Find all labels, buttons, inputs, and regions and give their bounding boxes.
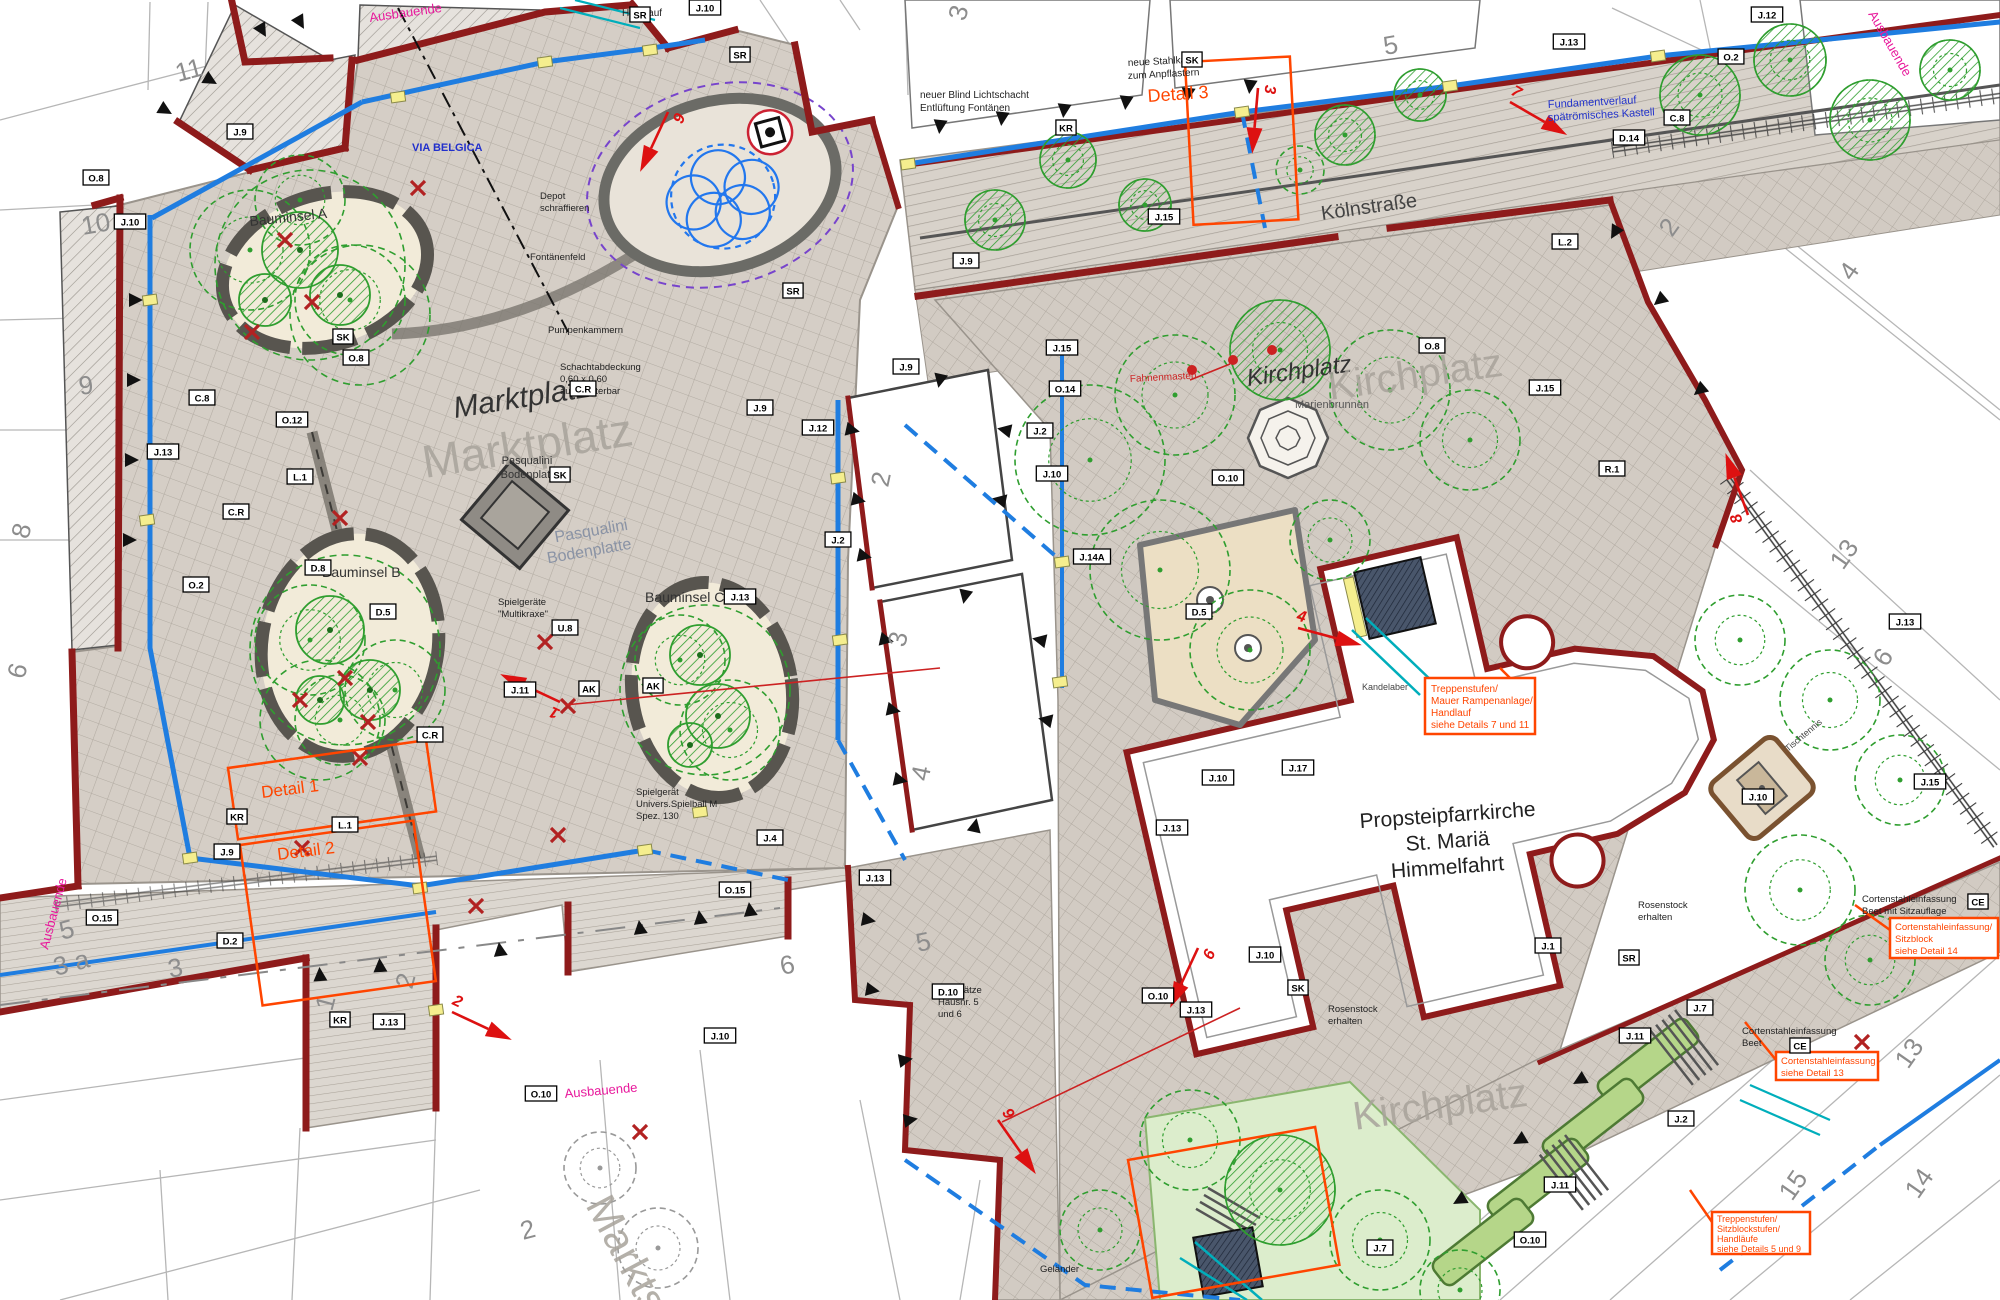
code-label-text: SK <box>553 471 566 482</box>
code-label-text: J.15 <box>1155 213 1174 224</box>
removal-x-mark <box>633 1125 647 1139</box>
utility-node <box>1054 556 1069 568</box>
code-label-text: J.9 <box>899 363 912 374</box>
code-label-text: J.11 <box>511 686 530 697</box>
section-number: 2 <box>449 992 465 1012</box>
code-label-text: SR <box>633 11 646 22</box>
code-label: C.R <box>570 381 596 396</box>
code-label: SK <box>333 329 353 344</box>
code-label: J.11 <box>1619 1028 1650 1043</box>
parcel-number: 2 <box>517 1213 539 1246</box>
code-label-text: J.4 <box>763 834 777 845</box>
code-label-text: SR <box>786 287 799 298</box>
treppen1-line3: Handlauf <box>1431 708 1471 719</box>
code-label: D.14 <box>1613 130 1644 145</box>
code-label: D.10 <box>932 984 963 999</box>
gelaender-label: Geländer <box>1040 1264 1079 1275</box>
utility-node <box>1650 50 1665 62</box>
treppen2-line4: siehe Details 5 und 9 <box>1717 1244 1801 1254</box>
site-plan-page: 637841299 111098653 a3122352345624613131… <box>0 0 2000 1300</box>
code-label: J.14A <box>1074 549 1111 564</box>
code-label: J.13 <box>859 870 890 885</box>
code-label: J.15 <box>1914 774 1945 789</box>
code-label: C.R <box>417 727 443 742</box>
code-label: CE <box>1790 1038 1810 1053</box>
spielgeraet-label-2: Univers.Spielball M <box>636 799 717 810</box>
entrance-triangle <box>291 13 310 32</box>
code-label: O.15 <box>86 910 117 925</box>
code-label: SK <box>1182 52 1202 67</box>
corten1-line1: Cortenstahleinfassung/ <box>1895 922 1993 933</box>
code-label-text: J.12 <box>809 424 828 435</box>
parcel-number: 6 <box>1 660 34 682</box>
code-label: J.1 <box>1535 938 1561 953</box>
marienbrunnen-label: Marienbrunnen <box>1295 399 1369 411</box>
code-label-text: O.15 <box>92 914 113 925</box>
code-label: C.R <box>223 504 249 519</box>
code-label: J.11 <box>1544 1177 1575 1192</box>
code-label: J.13 <box>147 444 178 459</box>
code-label: J.10 <box>114 214 145 229</box>
bauminsel-c-label: Bauminsel C <box>645 589 724 605</box>
bauminsel-b-label: Bauminsel B <box>322 564 401 580</box>
code-label-text: D.14 <box>1619 134 1640 145</box>
code-label: O.2 <box>1718 49 1744 64</box>
code-label-text: O.10 <box>1520 1236 1541 1247</box>
code-label: SR <box>630 7 650 22</box>
code-label-text: J.13 <box>731 593 750 604</box>
treppen2-line1: Treppenstufen/ <box>1717 1214 1778 1224</box>
corten2-line2: siehe Detail 13 <box>1781 1068 1844 1079</box>
spielgeraete-label-2: "Multikraxe" <box>498 609 548 620</box>
code-label-text: CE <box>1793 1042 1806 1053</box>
code-label-text: SR <box>733 51 746 62</box>
code-label: AK <box>579 681 599 696</box>
paving-bottom-center <box>848 830 1060 1300</box>
code-label-text: CE <box>1971 898 1984 909</box>
utility-node <box>832 634 847 646</box>
stellplaetze-label-3: und 6 <box>938 1009 962 1020</box>
code-label-text: SR <box>1622 954 1635 965</box>
code-label-text: L.1 <box>293 473 307 484</box>
code-label-text: D.8 <box>311 564 326 575</box>
code-label: SR <box>783 283 803 298</box>
entrance-triangle <box>996 421 1013 438</box>
tree-marker <box>1394 69 1446 121</box>
code-label: CE <box>1968 894 1988 909</box>
code-label: J.10 <box>1202 770 1233 785</box>
treppen2-line3: Handläufe <box>1717 1234 1758 1244</box>
code-label: J.10 <box>689 0 720 15</box>
code-label-text: J.9 <box>233 128 246 139</box>
corten2-black-2: Beet <box>1742 1038 1762 1049</box>
code-label: AK <box>643 678 663 693</box>
flagpole-dot <box>1267 345 1277 355</box>
fontaenenfeld-label: Fontänenfeld <box>530 252 585 263</box>
code-label: D.5 <box>370 604 396 619</box>
tree-marker <box>1754 24 1826 96</box>
code-label-text: C.8 <box>1670 114 1685 125</box>
utility-node <box>182 852 197 864</box>
tree-marker <box>1830 80 1910 160</box>
code-label-text: J.15 <box>1536 384 1555 395</box>
code-label-text: J.11 <box>1626 1032 1645 1043</box>
code-label-text: J.10 <box>1209 774 1228 785</box>
code-label: J.13 <box>1156 820 1187 835</box>
code-label-text: AK <box>582 685 596 696</box>
rosenstock2-label-1: Rosenstock <box>1328 1004 1378 1015</box>
rosenstock2-label-2: erhalten <box>1328 1016 1362 1027</box>
corten1-line3: siehe Detail 14 <box>1895 946 1958 957</box>
code-label-text: O.14 <box>1055 385 1076 396</box>
section-number: 3 <box>1261 84 1279 94</box>
detail3-label: Detail 3 <box>1147 82 1209 106</box>
pumpenkammern-label: Pumpenkammern <box>548 325 623 336</box>
code-label-text: J.12 <box>1758 11 1777 22</box>
code-label-text: KR <box>1059 124 1073 135</box>
code-label-text: J.2 <box>1033 427 1046 438</box>
tree-marker <box>564 1132 636 1204</box>
code-label: O.8 <box>83 170 109 185</box>
section-number: 8 <box>1727 511 1746 525</box>
site-plan-canvas: 637841299 111098653 a3122352345624613131… <box>0 0 2000 1300</box>
tree-crown <box>668 723 712 767</box>
corten2-black-1: Cortenstahleinfassung <box>1742 1026 1837 1037</box>
code-label-text: O.2 <box>1723 53 1738 64</box>
entrance-triangle <box>1242 79 1257 94</box>
utility-node <box>390 91 405 103</box>
code-label: J.7 <box>1687 1000 1713 1015</box>
utility-node <box>1442 80 1457 92</box>
code-label-text: SK <box>336 333 349 344</box>
code-label: J.9 <box>747 400 773 415</box>
code-label: J.13 <box>1180 1002 1211 1017</box>
entrance-triangle <box>156 101 175 120</box>
code-label-text: O.10 <box>531 1090 552 1101</box>
code-label-text: J.11 <box>1551 1181 1570 1192</box>
tree-crown <box>670 625 730 685</box>
code-label: L.2 <box>1552 234 1578 249</box>
code-label-text: O.10 <box>1218 474 1239 485</box>
code-label-text: J.10 <box>1256 951 1275 962</box>
depot-label-2: schraffieren <box>540 203 589 214</box>
code-label-text: J.7 <box>1693 1004 1706 1015</box>
code-label: O.8 <box>343 350 369 365</box>
treppen2-line2: Sitzblockstufen/ <box>1717 1224 1781 1234</box>
utility-node <box>1052 676 1067 688</box>
code-label: J.7 <box>1367 1240 1393 1255</box>
rosenstock1-label-1: Rosenstock <box>1638 900 1688 911</box>
code-label-text: C.8 <box>195 394 210 405</box>
code-label-text: C.R <box>228 508 245 519</box>
code-label-text: J.10 <box>711 1032 730 1043</box>
code-label-text: O.15 <box>725 886 746 897</box>
code-label-text: SK <box>1185 56 1198 67</box>
code-label-text: J.17 <box>1289 764 1308 775</box>
code-label-text: J.13 <box>1187 1006 1206 1017</box>
tree-marker <box>965 190 1025 250</box>
code-label: C.8 <box>189 390 215 405</box>
code-label: J.11 <box>504 682 535 697</box>
code-label-text: J.15 <box>1921 778 1940 789</box>
corten1-black-1: Cortenstahleinfassung <box>1862 894 1957 905</box>
code-label: L.1 <box>287 469 313 484</box>
spielgeraete-label-1: Spielgeräte <box>498 597 546 608</box>
code-label-text: J.1 <box>1541 942 1555 953</box>
pasqualini-small-1: Pasqualini <box>502 455 553 467</box>
utility-node <box>1234 106 1249 118</box>
utility-node <box>642 44 657 56</box>
code-label-text: J.14A <box>1079 553 1104 564</box>
tree-marker <box>1745 835 1855 945</box>
code-label-text: R.1 <box>1605 465 1621 476</box>
parcel-number: 8 <box>5 520 38 542</box>
code-label-text: O.2 <box>188 581 203 592</box>
lichtschacht-label-2: Entlüftung Fontänen <box>920 103 1010 114</box>
tree-marker <box>1315 105 1375 165</box>
tree-marker <box>1695 595 1785 685</box>
code-label: J.15 <box>1529 380 1560 395</box>
tree-crown <box>296 676 344 724</box>
spielgeraet-label-3: Spez. 130 <box>636 811 679 822</box>
code-label: O.10 <box>1514 1232 1545 1247</box>
code-label: J.12 <box>1751 7 1782 22</box>
code-label: SR <box>1619 950 1639 965</box>
code-label: J.17 <box>1282 760 1313 775</box>
code-label: J.9 <box>893 359 919 374</box>
code-label-text: J.10 <box>1749 793 1768 804</box>
code-label-text: J.7 <box>1373 1244 1386 1255</box>
tree-marker <box>1920 40 1980 100</box>
code-label: J.9 <box>227 124 253 139</box>
rosenstock1-label-2: erhalten <box>1638 912 1672 923</box>
code-label: J.10 <box>1036 466 1067 481</box>
depot-label-1: Depot <box>540 191 566 202</box>
code-label-text: J.9 <box>220 848 233 859</box>
code-label: SR <box>730 47 750 62</box>
parcel-number: 6 <box>777 949 797 981</box>
code-label: J.9 <box>953 253 979 268</box>
code-label-text: J.10 <box>1043 470 1062 481</box>
removal-x-mark <box>1855 1035 1869 1049</box>
code-label-text: J.10 <box>696 4 715 15</box>
code-label: J.2 <box>1668 1111 1694 1126</box>
utility-node <box>142 294 157 306</box>
code-label-text: L.2 <box>1558 238 1572 249</box>
code-label-text: C.R <box>422 731 439 742</box>
code-label-text: O.10 <box>1148 992 1169 1003</box>
utility-node <box>637 844 652 856</box>
entrance-triangle <box>1031 631 1048 648</box>
corten1-line2: Sitzblock <box>1895 934 1933 945</box>
code-label-text: D.2 <box>223 937 238 948</box>
code-label-text: J.10 <box>121 218 140 229</box>
utility-node <box>139 514 154 526</box>
corten2-line1: Cortenstahleinfassung <box>1781 1056 1876 1067</box>
code-label-text: O.12 <box>282 416 303 427</box>
code-label: J.15 <box>1046 340 1077 355</box>
code-label: D.2 <box>217 933 243 948</box>
tree-marker <box>1040 132 1096 188</box>
code-label-text: J.13 <box>866 874 885 885</box>
code-label: O.15 <box>719 882 750 897</box>
code-label: J.13 <box>373 1014 404 1029</box>
treppen1-line1: Treppenstufen/ <box>1431 684 1498 695</box>
code-label: KR <box>227 809 247 824</box>
kandelaber-label: Kandelaber <box>1362 682 1408 692</box>
code-label-text: L.1 <box>338 821 352 832</box>
code-label: O.8 <box>1419 338 1445 353</box>
code-label: SK <box>550 467 570 482</box>
code-label: J.10 <box>1249 947 1280 962</box>
code-label-text: O.8 <box>88 174 103 185</box>
code-label: O.10 <box>1212 470 1243 485</box>
spielgeraet-label-1: Spielgerät <box>636 787 679 798</box>
utility-node <box>428 1004 443 1016</box>
via-belgica-label: VIA BELGICA <box>412 142 483 154</box>
code-label-text: J.9 <box>753 404 766 415</box>
code-label-text: O.8 <box>348 354 363 365</box>
code-label: C.8 <box>1664 110 1690 125</box>
tree-crown <box>340 660 400 720</box>
code-label-text: AK <box>646 682 660 693</box>
utility-node <box>537 56 552 68</box>
code-label-text: SK <box>1291 984 1304 995</box>
code-label: J.4 <box>757 830 783 845</box>
code-label: O.12 <box>276 412 307 427</box>
code-label: J.13 <box>1889 614 1920 629</box>
code-label-text: KR <box>230 813 244 824</box>
code-label-text: D.10 <box>938 988 958 999</box>
tree-crown <box>239 274 291 326</box>
code-label: J.10 <box>704 1028 735 1043</box>
treppen1-line4: siehe Details 7 und 11 <box>1431 720 1530 731</box>
code-label: KR <box>1056 120 1076 135</box>
lichtschacht-label-1: neuer Blind Lichtschacht <box>920 90 1029 101</box>
code-label: J.13 <box>1553 34 1584 49</box>
tree-crown <box>296 596 364 664</box>
code-label: J.10 <box>1742 789 1773 804</box>
code-label: J.9 <box>214 844 240 859</box>
parcel-number: 13 <box>1888 1033 1929 1074</box>
section-arrow: 2 <box>444 992 520 1047</box>
utility-node <box>830 472 845 484</box>
code-label-text: J.13 <box>380 1018 399 1029</box>
code-label: J.2 <box>1027 423 1053 438</box>
code-label-text: C.R <box>575 385 592 396</box>
code-label: O.2 <box>183 577 209 592</box>
code-label: U.8 <box>552 620 578 635</box>
marktstrasse-label: Marktstraße <box>577 1187 724 1300</box>
code-label-text: KR <box>333 1016 347 1027</box>
code-label-text: J.13 <box>154 448 173 459</box>
code-label-text: J.15 <box>1053 344 1072 355</box>
code-label: O.10 <box>1142 988 1173 1003</box>
code-label: J.2 <box>825 532 851 547</box>
code-label-text: J.13 <box>1896 618 1915 629</box>
parcel-number: 14 <box>1898 1163 1939 1204</box>
code-label-text: J.13 <box>1560 38 1579 49</box>
code-label: L.1 <box>332 817 358 832</box>
code-label-text: J.13 <box>1163 824 1182 835</box>
tischtennis-table <box>1707 733 1818 842</box>
parcel-number: 4 <box>1832 256 1865 285</box>
ausbauende-bottom: Ausbauende <box>564 1080 638 1101</box>
parcel-number: 13 <box>1823 534 1864 575</box>
code-label: O.14 <box>1049 381 1080 396</box>
code-label-text: J.2 <box>831 536 844 547</box>
code-label: D.8 <box>305 560 331 575</box>
entrance-triangle <box>967 817 984 834</box>
corten1-black-2: Beet mit Sitzauflage <box>1862 906 1947 917</box>
parcel-number: 10 <box>79 206 113 241</box>
utility-node <box>412 882 427 894</box>
code-label: J.12 <box>802 420 833 435</box>
code-label-text: D.5 <box>1192 608 1208 619</box>
code-label-text: J.9 <box>959 257 972 268</box>
code-label-text: J.2 <box>1674 1115 1687 1126</box>
code-label: SK <box>1288 980 1308 995</box>
code-label: J.15 <box>1148 209 1179 224</box>
code-label-text: D.5 <box>376 608 392 619</box>
code-label-text: O.8 <box>1424 342 1439 353</box>
code-label-text: U.8 <box>558 624 573 635</box>
code-label: KR <box>330 1012 350 1027</box>
code-label: R.1 <box>1599 461 1625 476</box>
utility-node <box>900 158 915 170</box>
schacht-label-1: Schachtabdeckung <box>560 362 641 373</box>
treppen1-line2: Mauer Rampenanlage/ <box>1431 696 1533 707</box>
code-label: O.10 <box>525 1086 556 1101</box>
code-label: J.13 <box>724 589 755 604</box>
code-label: D.5 <box>1186 604 1212 619</box>
